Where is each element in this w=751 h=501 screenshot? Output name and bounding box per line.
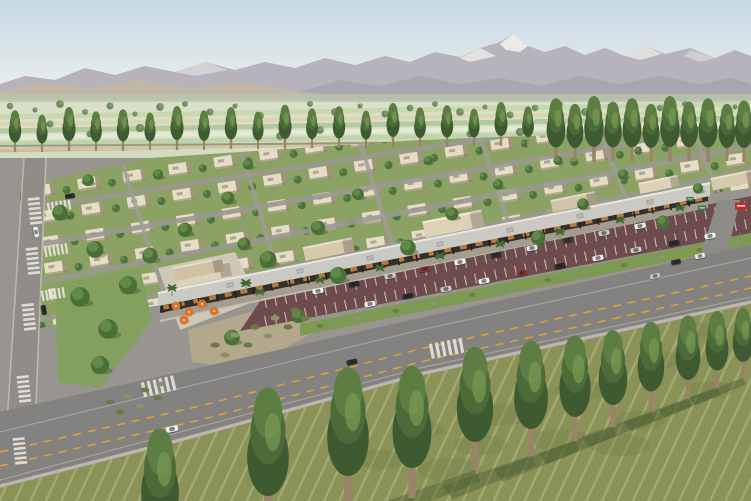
shrub — [290, 307, 299, 312]
shrub — [243, 342, 252, 347]
shrub — [263, 333, 272, 338]
pole — [580, 264, 581, 271]
shrub — [136, 404, 144, 409]
shrub — [283, 324, 292, 329]
shrub — [317, 324, 324, 328]
sign — [698, 206, 706, 211]
shrub — [545, 278, 552, 282]
shrub — [154, 396, 162, 401]
pole — [660, 248, 661, 255]
pole — [340, 312, 341, 319]
shrub — [270, 315, 279, 320]
shrub — [220, 352, 229, 357]
sign — [686, 197, 693, 201]
shrub — [250, 324, 259, 329]
shrub — [659, 255, 666, 259]
shrub — [431, 301, 438, 305]
hvac — [227, 282, 234, 287]
hvac — [577, 213, 584, 218]
shrub — [621, 263, 628, 267]
shrub — [583, 270, 590, 274]
sign — [735, 203, 747, 210]
shrub — [116, 410, 124, 415]
shrub — [735, 240, 742, 244]
shrub — [124, 394, 132, 399]
scene-canvas — [0, 0, 751, 501]
shrub — [141, 388, 149, 393]
shrub — [507, 286, 514, 290]
aerial-rendering — [0, 0, 751, 501]
shrub — [210, 342, 219, 347]
hvac — [367, 255, 374, 260]
hvac — [437, 241, 444, 246]
shrub — [393, 309, 400, 313]
shrub — [355, 316, 362, 320]
hvac — [297, 268, 304, 273]
pole — [420, 296, 421, 303]
shrub — [230, 332, 239, 337]
pole — [740, 232, 741, 239]
shrub — [300, 315, 309, 320]
shrub — [469, 293, 476, 297]
shrub — [156, 382, 164, 387]
shrub — [106, 400, 114, 405]
hvac — [507, 227, 514, 232]
hvac — [647, 199, 654, 204]
pole — [500, 280, 501, 287]
